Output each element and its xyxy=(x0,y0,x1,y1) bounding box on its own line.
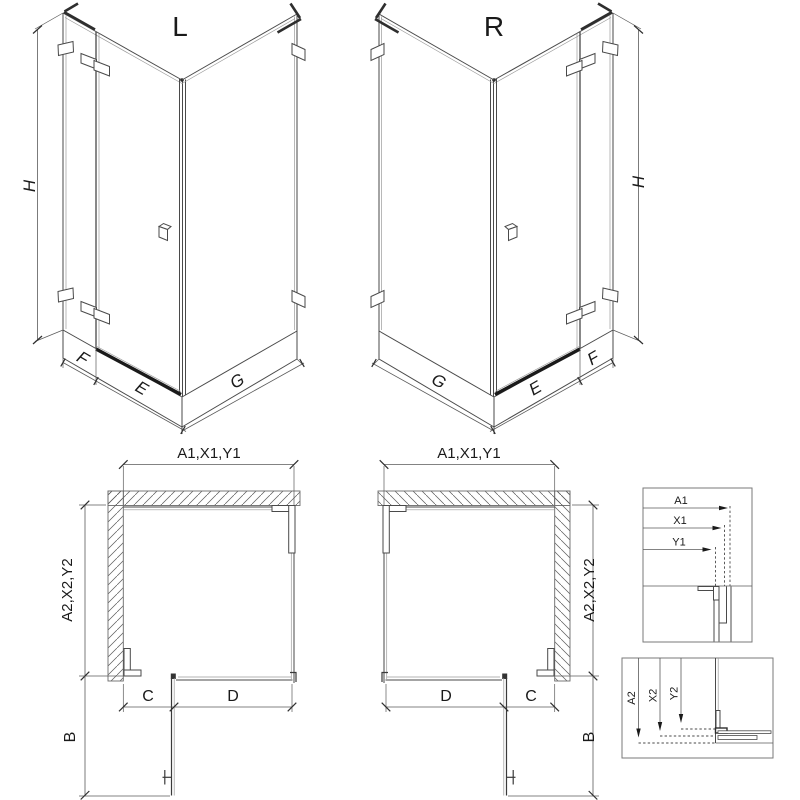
detail-top-dim-y1: Y1 xyxy=(672,537,685,549)
iso-right-version-label: R xyxy=(484,11,504,42)
plan-left-dim-c: C xyxy=(142,688,154,705)
iso-left-dim-f: F xyxy=(74,347,94,369)
plan-right-dim-b: B xyxy=(581,732,598,743)
detail-box-bottom: A2 X2 Y2 xyxy=(622,658,773,758)
detail-bottom-profile-section xyxy=(716,711,772,740)
detail-top-dim-a1: A1 xyxy=(674,495,687,507)
plan-right-dim-c: C xyxy=(525,688,537,705)
iso-left-dim-g: G xyxy=(227,370,248,393)
detail-box-top: A1 X1 Y1 xyxy=(643,488,752,642)
iso-left-geometry xyxy=(33,4,305,435)
plan-right-dim-width: A1,X1,Y1 xyxy=(437,445,500,462)
iso-right-dim-h: H xyxy=(629,175,648,188)
plan-right-dim-depth: A2,X2,Y2 xyxy=(581,558,598,621)
plan-left-dim-width: A1,X1,Y1 xyxy=(177,445,240,462)
plan-view-right: A1,X1,Y1 A2,X2,Y2 D C B xyxy=(378,445,599,800)
iso-right-dim-g: G xyxy=(428,370,449,393)
iso-right-dim-e: E xyxy=(526,377,546,399)
detail-top-profile-section xyxy=(698,587,731,642)
detail-top-dim-x1: X1 xyxy=(673,515,686,527)
detail-bottom-dim-x2: X2 xyxy=(648,689,660,702)
detail-bottom-dim-y2: Y2 xyxy=(669,687,681,700)
iso-left-dim-e: E xyxy=(132,377,152,399)
plan-left-dim-d: D xyxy=(227,688,239,705)
plan-left-dim-depth: A2,X2,Y2 xyxy=(59,558,76,621)
plan-left-dim-b: B xyxy=(62,732,79,743)
shower-enclosure-diagram: L H F E G R H G E F A1,X1,Y1 A2,X2,Y2 C … xyxy=(0,0,800,800)
iso-right-dim-f: F xyxy=(584,347,604,369)
iso-right-geometry xyxy=(371,4,643,435)
iso-view-left: L H F E G xyxy=(20,4,305,435)
plan-right-dim-d: D xyxy=(440,688,452,705)
iso-view-right: R H G E F xyxy=(371,4,648,435)
plan-view-left: A1,X1,Y1 A2,X2,Y2 C D B xyxy=(59,445,300,800)
plan-left-geometry xyxy=(79,460,300,799)
technical-drawing-page: L H F E G R H G E F A1,X1,Y1 A2,X2,Y2 C … xyxy=(0,0,800,800)
iso-left-dim-h: H xyxy=(20,179,39,192)
detail-bottom-dim-a2: A2 xyxy=(626,691,638,704)
iso-left-version-label: L xyxy=(172,11,188,42)
plan-right-geometry xyxy=(378,460,599,799)
